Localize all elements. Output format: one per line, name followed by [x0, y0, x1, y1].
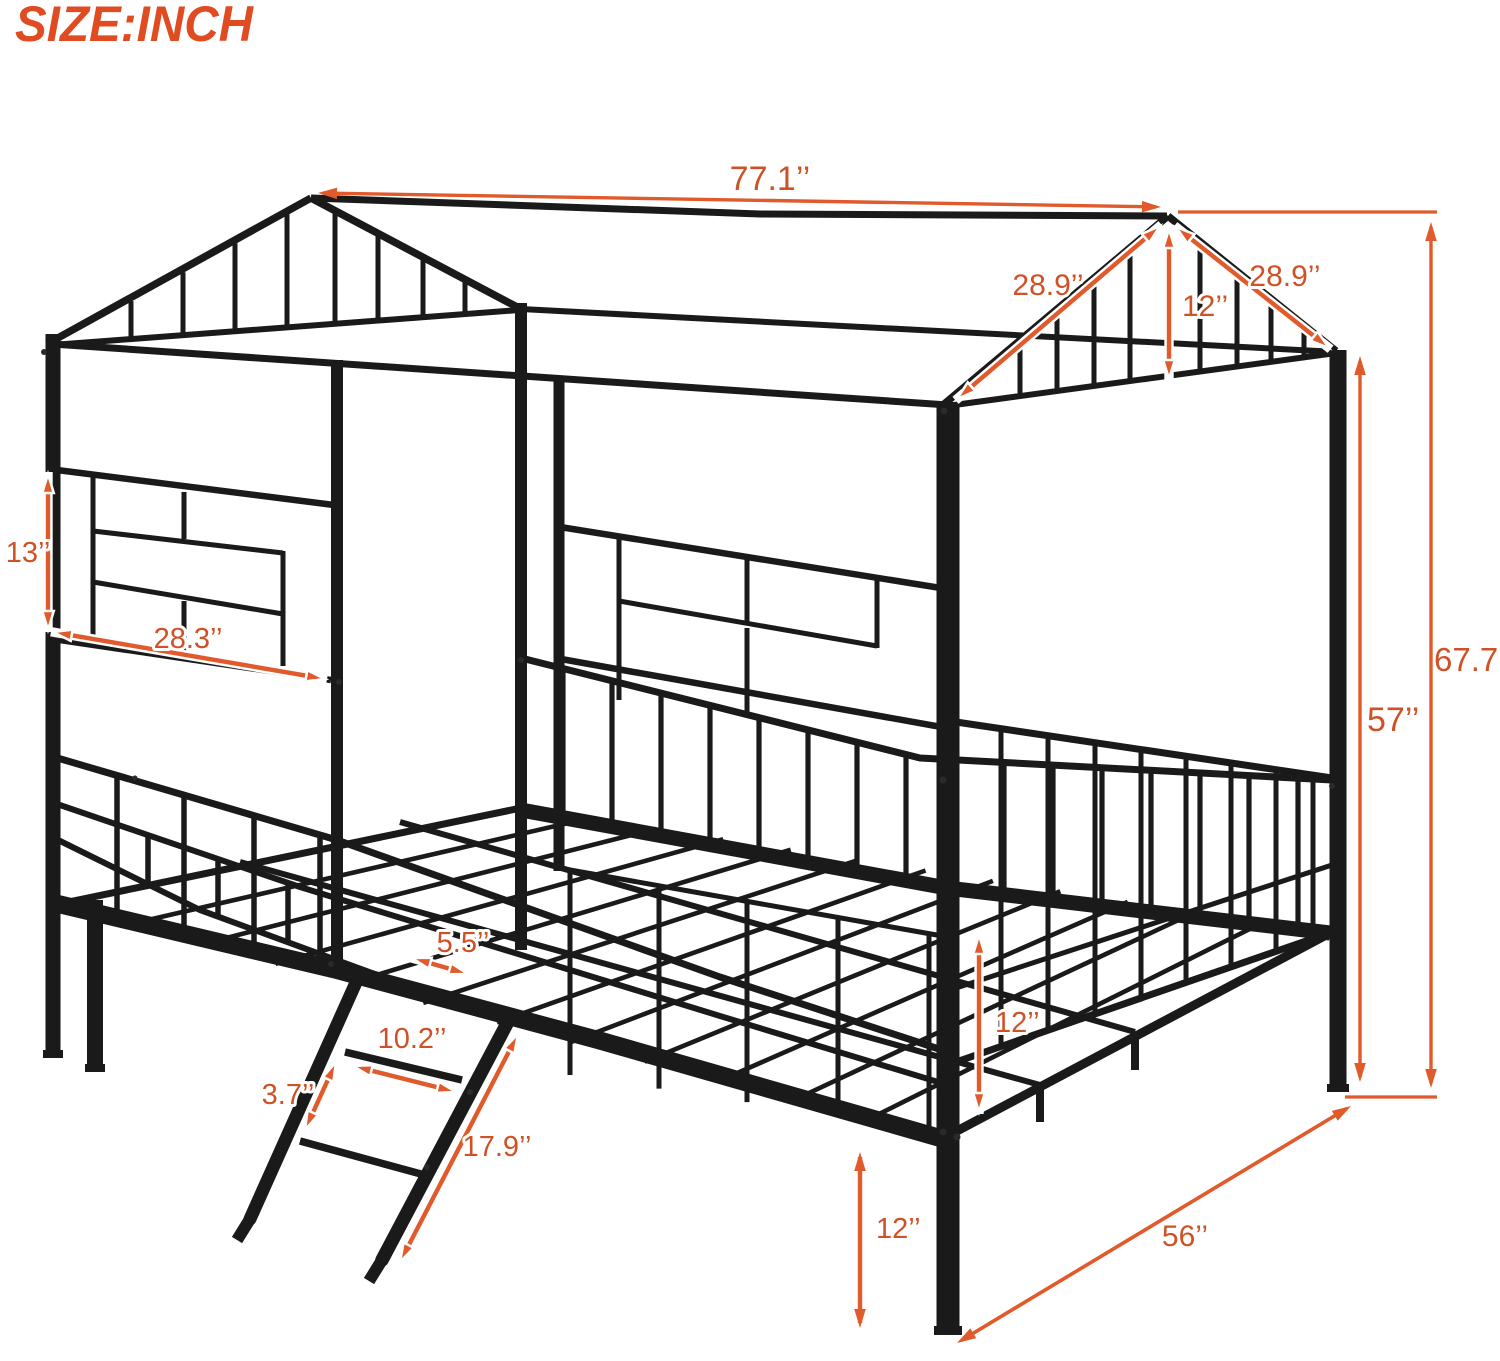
svg-text:28.9’’: 28.9’’	[1012, 269, 1083, 302]
svg-text:10.2’’: 10.2’’	[378, 1023, 447, 1055]
svg-text:12’’: 12’’	[995, 1007, 1040, 1039]
svg-text:17.9’’: 17.9’’	[463, 1131, 532, 1163]
svg-text:77.1’’: 77.1’’	[730, 160, 811, 198]
svg-text:3.7’’: 3.7’’	[262, 1079, 315, 1111]
svg-text:67.7’’: 67.7’’	[1434, 641, 1500, 678]
svg-text:12’’: 12’’	[876, 1213, 921, 1245]
svg-text:5.5’’: 5.5’’	[437, 927, 490, 959]
svg-text:57’’: 57’’	[1367, 701, 1419, 739]
svg-text:13’’: 13’’	[6, 537, 51, 569]
svg-text:56’’: 56’’	[1162, 1220, 1208, 1253]
svg-text:28.9’’: 28.9’’	[1249, 260, 1320, 293]
svg-text:28.3’’: 28.3’’	[154, 623, 223, 655]
svg-text:12’’: 12’’	[1182, 290, 1228, 323]
svg-text:SIZE:INCH: SIZE:INCH	[15, 0, 254, 52]
